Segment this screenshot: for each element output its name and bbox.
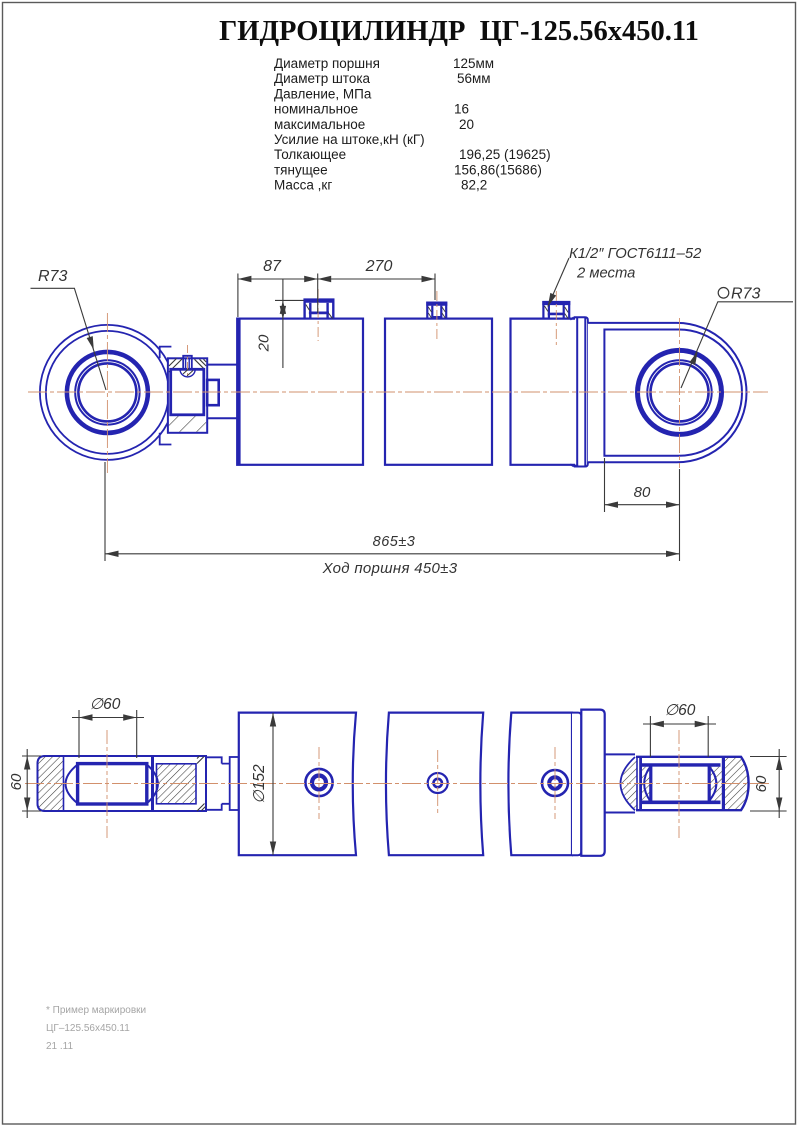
svg-text:60: 60 [8, 773, 25, 790]
svg-text:номинальное: номинальное [274, 102, 358, 117]
svg-text:20: 20 [459, 117, 474, 132]
svg-text:Масса ,кг: Масса ,кг [274, 178, 332, 193]
svg-text:20: 20 [256, 334, 273, 352]
svg-text:∅60: ∅60 [90, 696, 121, 713]
svg-text:Усилие на штоке,кН (кГ): Усилие на штоке,кН (кГ) [274, 132, 425, 147]
svg-text:56мм: 56мм [457, 71, 491, 86]
svg-text:К1/2″ ГОСТ6111–52: К1/2″ ГОСТ6111–52 [569, 246, 702, 262]
svg-text:156,86(15686): 156,86(15686) [454, 162, 542, 177]
svg-text:82,2: 82,2 [461, 178, 487, 193]
svg-text:80: 80 [634, 484, 651, 501]
svg-text:∅60: ∅60 [665, 702, 696, 719]
svg-text:∅152: ∅152 [251, 764, 268, 804]
svg-text:Диаметр штока: Диаметр штока [274, 71, 371, 86]
svg-text:Ход поршня 450±3: Ход поршня 450±3 [322, 560, 458, 577]
svg-text:16: 16 [454, 102, 469, 117]
svg-text:270: 270 [365, 258, 393, 275]
svg-text:87: 87 [263, 258, 282, 275]
svg-text:Диаметр поршня: Диаметр поршня [274, 56, 380, 71]
svg-text:865±3: 865±3 [373, 534, 416, 550]
svg-text:2 места: 2 места [576, 266, 635, 282]
svg-text:* Пример маркировки: * Пример маркировки [46, 1005, 146, 1016]
svg-text:тянущее: тянущее [274, 162, 328, 177]
svg-text:21 .11: 21 .11 [46, 1041, 73, 1052]
svg-text:R73: R73 [731, 286, 760, 303]
svg-text:Давление, МПа: Давление, МПа [274, 86, 372, 101]
svg-text:Толкающее: Толкающее [274, 147, 346, 162]
svg-text:125мм: 125мм [453, 56, 494, 71]
svg-text:60: 60 [753, 775, 770, 792]
svg-text:196,25 (19625): 196,25 (19625) [459, 147, 551, 162]
svg-text:ЦГ–125.56х450.11: ЦГ–125.56х450.11 [46, 1023, 130, 1034]
svg-text:ГИДРОЦИЛИНДР ЦГ-125.56х450.11: ГИДРОЦИЛИНДР ЦГ-125.56х450.11 [219, 16, 699, 47]
svg-text:R73: R73 [38, 268, 67, 285]
svg-text:максимальное: максимальное [274, 117, 365, 132]
